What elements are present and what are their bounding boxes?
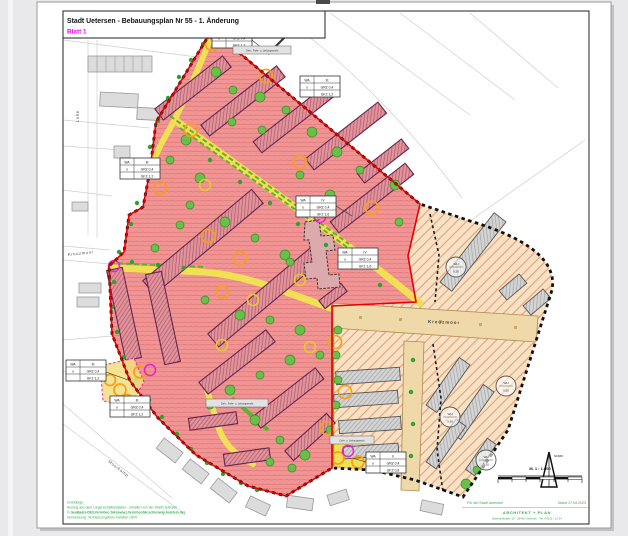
svg-text:GRZ 0,4: GRZ 0,4 (87, 369, 100, 373)
svg-text:o: o (116, 405, 118, 409)
svg-text:WA: WA (300, 198, 306, 202)
svg-text:III: III (92, 362, 95, 366)
svg-text:GRZ 0,4: GRZ 0,4 (317, 205, 330, 209)
for-city-label: Für die Stadt Uetersen (467, 501, 503, 505)
svg-text:o: o (344, 257, 346, 261)
svg-text:III: III (136, 398, 139, 402)
scale-label: M. 1 : 1.000 (529, 466, 551, 471)
date-label: Stand 17.04.2023 (558, 501, 586, 505)
svg-text:GFZ 1,2: GFZ 1,2 (131, 412, 144, 416)
svg-text:9,50: 9,50 (483, 463, 489, 467)
svg-text:Geh-, Fahr- u. Leitungsrecht: Geh-, Fahr- u. Leitungsrecht (246, 48, 279, 52)
north-label: NORD (554, 454, 564, 458)
svg-text:o: o (72, 369, 74, 373)
svg-text:Geh-, Fahr- u. Leitungsrecht: Geh-, Fahr- u. Leitungsrecht (221, 401, 254, 405)
svg-text:9,50: 9,50 (453, 270, 459, 274)
plan-canvas: Lohe Kreuzmoor Kreuzmoor Moorkamp WAIII … (0, 0, 628, 536)
window-edge (8, 0, 13, 536)
svg-text:GRZ 0,4: GRZ 0,4 (321, 85, 334, 89)
svg-text:WH: WH (504, 381, 509, 385)
zoning-table: WAIII oGRZ 0,4 GFZ 1,2 (300, 76, 340, 97)
page-top-mark (316, 0, 330, 4)
svg-text:GFZ 1,2: GFZ 1,2 (87, 376, 100, 380)
credits-line1: Auszug aus dem Liegenschaftskataster - e… (67, 506, 177, 510)
svg-text:III: III (326, 78, 329, 82)
svg-text:WA: WA (370, 454, 376, 458)
zoning-table: WAIV oGRZ 0,4 GFZ 1,6 (296, 196, 336, 217)
svg-text:9,50: 9,50 (447, 420, 453, 424)
zoning-table: WAIII oGRZ 0,4 GFZ 1,2 (120, 158, 160, 179)
svg-text:III: III (146, 160, 149, 164)
zoning-table: WAII oGRZ 0,4 GFZ 0,8 (366, 452, 406, 473)
svg-text:WH: WH (454, 262, 459, 266)
annotation-box: Geh-, Fahr- u. Leitungsrecht (233, 46, 291, 54)
svg-text:GFZ 1,2: GFZ 1,2 (321, 92, 334, 96)
sheet-label: Blatt 1 (67, 29, 87, 36)
svg-text:GRZ 0,4: GRZ 0,4 (141, 167, 154, 171)
svg-text:GRZ 0,4: GRZ 0,4 (387, 461, 400, 465)
svg-text:WA: WA (70, 362, 76, 366)
svg-text:o: o (302, 205, 304, 209)
street-label-lohe: Lohe (75, 110, 80, 122)
firm-name: ARCHITEKT + PLAN (503, 510, 551, 515)
svg-text:WA: WA (342, 250, 348, 254)
zoning-table: WAIII oGRZ 0,4 GFZ 1,2 (66, 360, 106, 381)
svg-text:WA: WA (124, 160, 130, 164)
svg-text:WA: WA (114, 398, 120, 402)
svg-text:GFZ 1,6: GFZ 1,6 (317, 212, 330, 216)
plan-title: Stadt Uetersen - Bebauungsplan Nr 55 - 1… (67, 17, 239, 25)
svg-text:II: II (392, 454, 394, 458)
credits-line3: Vermessung: Vermessungsbüro Fahsten ÖbVI (67, 516, 137, 520)
svg-text:GRZ 0,4: GRZ 0,4 (359, 257, 372, 261)
svg-text:o: o (372, 461, 374, 465)
height-circle: WH9,50 (446, 257, 466, 277)
title-block: Stadt Uetersen - Bebauungsplan Nr 55 - 1… (63, 11, 325, 38)
svg-text:o: o (126, 167, 128, 171)
svg-text:GRZ 0,4: GRZ 0,4 (131, 405, 144, 409)
zoning-table: WAIV oGRZ 0,4 GFZ 1,6 (338, 248, 378, 269)
height-circle: WH9,50 (476, 450, 496, 470)
svg-text:9,50: 9,50 (503, 389, 509, 393)
credits-line2: © GeoBasis-DE/LVermGeo SH (www.LVermGeoS… (67, 511, 185, 515)
svg-text:WH: WH (448, 412, 453, 416)
svg-text:o: o (306, 85, 308, 89)
svg-text:WH: WH (484, 455, 489, 459)
credits-heading: Grundlage: (67, 501, 84, 505)
annotation-box: Geh-, Fahr- u. Leitungsrecht (206, 399, 268, 407)
height-circle: WH9,50 (496, 376, 516, 396)
svg-text:GFZ 1,2: GFZ 1,2 (141, 174, 154, 178)
annotation-box: Geh- u. Leitungsrecht (330, 436, 374, 444)
svg-text:Geh- u. Leitungsrecht: Geh- u. Leitungsrecht (340, 438, 365, 442)
height-circle: WH9,50 (440, 407, 460, 427)
svg-text:GFZ 0,8: GFZ 0,8 (387, 468, 400, 472)
svg-text:GFZ 1,6: GFZ 1,6 (359, 264, 372, 268)
firm-address: Bahnhofstraße 10 · 25436 Uetersen · Tel.… (492, 517, 562, 521)
zoning-table: WAIII oGRZ 0,4 GFZ 1,2 (110, 396, 150, 417)
svg-text:WA: WA (304, 78, 310, 82)
